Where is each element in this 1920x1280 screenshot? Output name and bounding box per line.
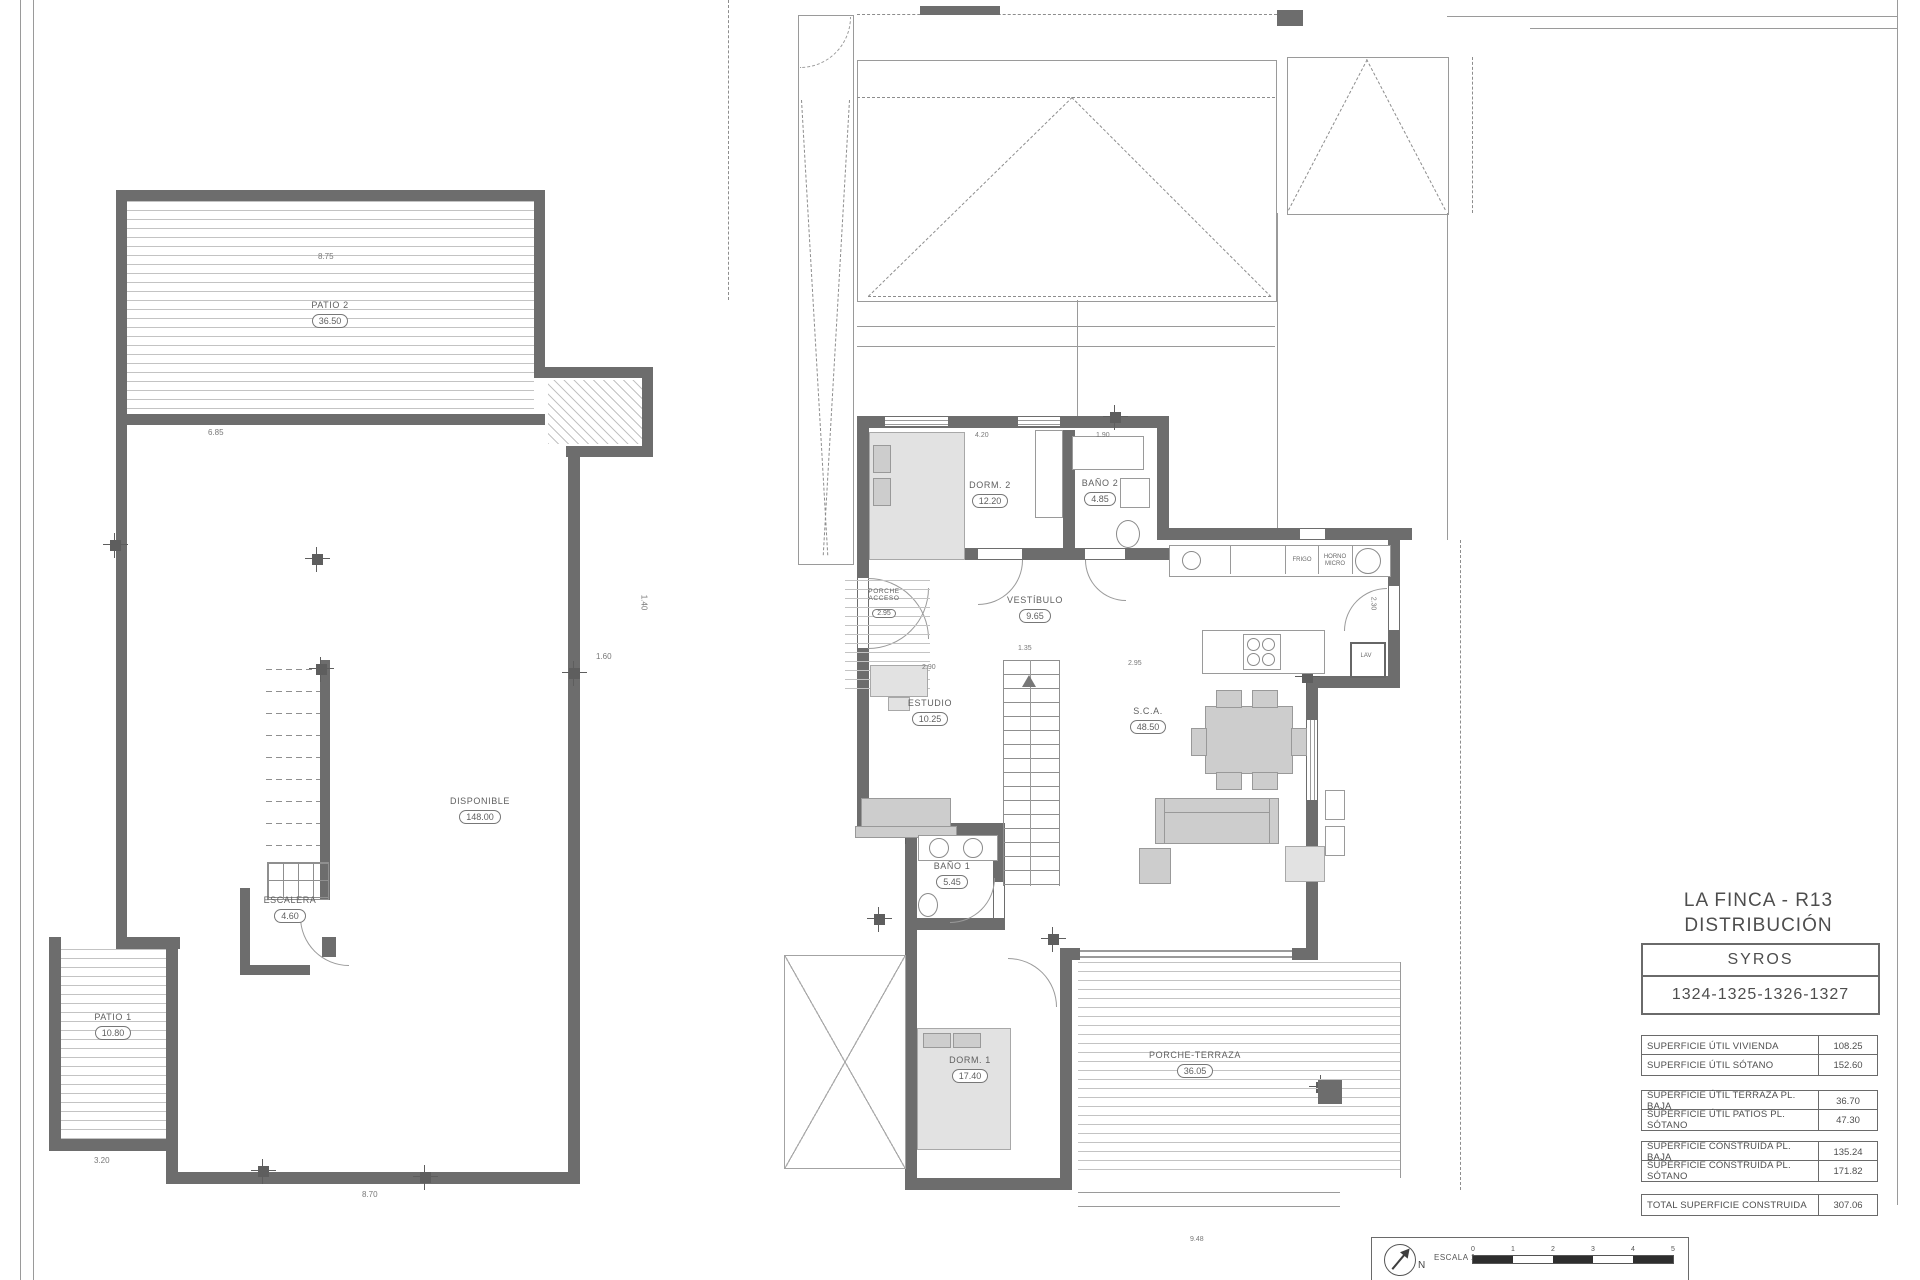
- door-gap: [1389, 586, 1399, 630]
- room-label-terraza: PORCHE-TERRAZA 36.05: [1130, 1050, 1260, 1079]
- dim-label: 4.20: [975, 432, 989, 439]
- room-area: 36.50: [312, 314, 349, 328]
- room-area: 10.80: [95, 1026, 132, 1040]
- horno-label: HORNO MICRO: [1319, 554, 1351, 567]
- total-label: TOTAL SUPERFICIE CONSTRUIDA: [1642, 1200, 1818, 1211]
- door-gap: [1085, 549, 1125, 559]
- area-row-label: SUPERFICIE ÚTIL PATIOS PL. SÓTANO: [1642, 1109, 1818, 1131]
- room-label-patio2: PATIO 2 36.50: [270, 300, 390, 329]
- project-title: LA FINCA - R13: [1641, 890, 1876, 912]
- dim-label: 8.75: [318, 252, 334, 261]
- sink-bano1: [929, 838, 949, 858]
- room-name: DISPONIBLE: [420, 796, 540, 807]
- room-area: 2.95: [872, 609, 896, 618]
- dining-table: [1205, 706, 1293, 774]
- room-name: ACCESO: [848, 595, 920, 602]
- area-row-value: 171.82: [1818, 1161, 1877, 1181]
- sheet-border-right: [1897, 0, 1898, 1205]
- axis-marker: [1048, 934, 1059, 945]
- window-glass: [885, 424, 948, 425]
- room-label-porche-acceso: PORCHE ACCESO 2.95: [848, 588, 920, 620]
- window-glass: [1310, 720, 1311, 800]
- roof-fascia-2: [857, 346, 1275, 347]
- washer-box: [1350, 642, 1386, 678]
- roof-fascia-1: [857, 326, 1275, 327]
- plan-sheet: PATIO 2 36.50 DISPONIBLE 148.00 ESCALERA…: [0, 0, 1920, 1280]
- total-row: TOTAL SUPERFICIE CONSTRUIDA 307.06: [1641, 1194, 1878, 1216]
- terraza-step: [1078, 1192, 1340, 1193]
- room-name: PATIO 2: [270, 300, 390, 311]
- roof-connector: [1077, 300, 1078, 416]
- area-row-value: 152.60: [1818, 1055, 1877, 1075]
- room-label-bano1: BAÑO 1 5.45: [912, 861, 992, 890]
- scale-tick: 2: [1551, 1246, 1555, 1253]
- legend-box: N ESCALA 1: 0 1 2 3 4 5: [1371, 1237, 1689, 1280]
- patio2-wall-right: [534, 190, 545, 378]
- pillow: [923, 1033, 951, 1048]
- room-area: 12.20: [972, 494, 1009, 508]
- pillow: [873, 478, 891, 506]
- patio2-wall-top: [116, 190, 545, 201]
- counter-divider: [1352, 546, 1353, 574]
- pillow: [953, 1033, 981, 1048]
- sofa-estudio: [861, 798, 951, 828]
- basement-wall-bottom: [166, 1172, 580, 1184]
- model-name: SYROS: [1727, 951, 1793, 968]
- scale-tick: 0: [1471, 1246, 1475, 1253]
- scale-tick: 1: [1511, 1246, 1515, 1253]
- north-label: N: [1418, 1260, 1425, 1271]
- room-area: 4.60: [274, 909, 306, 923]
- window-gap: [1307, 720, 1317, 800]
- scale-tick: 4: [1631, 1246, 1635, 1253]
- drawing-title: DISTRIBUCIÓN: [1641, 915, 1876, 937]
- scale-segment: [1553, 1256, 1593, 1263]
- dining-chair: [1291, 728, 1307, 756]
- roof-connector: [1447, 213, 1448, 540]
- sofa-arm: [1269, 798, 1279, 844]
- dim-label: 1.40: [639, 595, 648, 611]
- dim-label: 1.60: [596, 652, 612, 661]
- escalera-wall-bottom: [240, 965, 310, 975]
- dim-label: 2.30: [1369, 597, 1376, 611]
- scale-tick: 3: [1591, 1246, 1595, 1253]
- dim-label: 1.35: [1018, 645, 1032, 652]
- area-row-value: 36.70: [1818, 1091, 1877, 1111]
- terraza-pillar: [1318, 1080, 1342, 1104]
- axis-marker: [569, 668, 580, 679]
- room-area: 4.85: [1084, 492, 1116, 506]
- axis-marker: [1110, 412, 1121, 423]
- room-name: PATIO 1: [63, 1012, 163, 1023]
- kitchen-door-arc: [1344, 588, 1387, 631]
- dim-label: 8.70: [362, 1190, 378, 1199]
- scale-segment: [1473, 1256, 1513, 1263]
- room-name: DORM. 1: [925, 1055, 1015, 1066]
- dim-label: 3.20: [94, 1156, 110, 1165]
- room-area: 5.45: [936, 875, 968, 889]
- slider-stub: [1060, 948, 1080, 960]
- sofa-arm: [1155, 798, 1165, 844]
- escalera-door-post: [322, 937, 336, 957]
- roof-eave-line: [868, 296, 1271, 297]
- lav-label: LAV: [1352, 653, 1380, 660]
- sheet-border-left-outer: [20, 0, 21, 1280]
- frigo-label: FRIGO: [1287, 557, 1317, 564]
- room-label-sca: S.C.A. 48.50: [1098, 706, 1198, 735]
- kitchen-sink: [1182, 551, 1201, 570]
- room-label-dorm1: DORM. 1 17.40: [925, 1055, 1015, 1084]
- bano2-door-arc: [1085, 560, 1126, 601]
- total-value: 307.06: [1818, 1195, 1877, 1215]
- counter-divider: [1285, 546, 1286, 574]
- axis-marker: [316, 664, 327, 675]
- room-name: S.C.A.: [1098, 706, 1198, 717]
- gf-wall-dorm1-bottom: [905, 1178, 1072, 1190]
- patio1-wall-left: [49, 937, 61, 1151]
- area-row: SUPERFICIE ÚTIL PATIOS PL. SÓTANO 47.30: [1641, 1109, 1878, 1131]
- slider-stub: [1292, 948, 1306, 960]
- hob-burner: [1247, 638, 1260, 651]
- top-mark-2: [1277, 10, 1303, 26]
- room-label-patio1: PATIO 1 10.80: [63, 1012, 163, 1041]
- toilet-bano1: [918, 893, 938, 917]
- room-area: 9.65: [1019, 609, 1051, 623]
- boundary-dashed-top: [728, 0, 729, 300]
- roof-connector: [1277, 213, 1278, 528]
- terraza-edge: [1400, 962, 1401, 1178]
- annex-wall-right: [642, 367, 653, 457]
- compass-icon: [1384, 1244, 1416, 1276]
- door-gap: [994, 882, 1004, 922]
- window-glass: [1314, 720, 1315, 800]
- roof-dashed-edge: [1472, 57, 1473, 213]
- room-label-bano2: BAÑO 2 4.85: [1055, 478, 1145, 507]
- dorm1-door-arc: [1008, 958, 1057, 1007]
- window-glass: [1018, 420, 1060, 421]
- axis-marker: [258, 1166, 269, 1177]
- room-label-estudio: ESTUDIO 10.25: [885, 698, 975, 727]
- room-name: ESCALERA: [240, 895, 340, 906]
- area-row-value: 108.25: [1818, 1036, 1877, 1056]
- boundary-dashed-right: [1460, 540, 1461, 1190]
- room-area: 48.50: [1130, 720, 1167, 734]
- dim-label: 9.48: [1190, 1236, 1204, 1243]
- dim-label: 6.85: [208, 428, 224, 437]
- dining-chair: [1216, 690, 1242, 708]
- patio1-wall-bottom: [49, 1139, 173, 1151]
- dim-label: 2.90: [922, 664, 936, 671]
- ac-unit: [1325, 826, 1345, 856]
- annex-hatch: [548, 380, 642, 444]
- room-name: BAÑO 2: [1055, 478, 1145, 489]
- slider-glass: [1080, 956, 1292, 958]
- plots-box: 1324-1325-1326-1327: [1641, 975, 1880, 1015]
- sideboard-estudio: [870, 665, 928, 697]
- stairs-dashed-flight: [266, 648, 322, 862]
- sink-bano1: [963, 838, 983, 858]
- area-row-label: SUPERFICIE CONSTRUIDA PL. SÓTANO: [1642, 1160, 1818, 1182]
- room-name: PORCHE-TERRAZA: [1130, 1050, 1260, 1061]
- scale-segment: [1633, 1256, 1673, 1263]
- plot-numbers: 1324-1325-1326-1327: [1672, 986, 1849, 1003]
- axis-marker: [420, 1172, 431, 1183]
- area-row-label: SUPERFICIE ÚTIL SÓTANO: [1642, 1060, 1818, 1071]
- toilet-bano2: [1116, 520, 1140, 548]
- sheet-border-left-inner: [33, 0, 34, 1280]
- gf-wall-dorm1-right: [1060, 948, 1072, 1190]
- window-glass: [885, 420, 948, 421]
- stairs-ground: [1003, 660, 1060, 886]
- model-box: SYROS: [1641, 943, 1880, 977]
- area-row-value: 135.24: [1818, 1142, 1877, 1162]
- dim-label: 2.95: [1128, 660, 1142, 667]
- window-gap: [1300, 529, 1325, 539]
- dining-chair: [1252, 772, 1278, 790]
- basement-wall-left: [116, 425, 127, 949]
- stairs-rail: [1030, 660, 1031, 886]
- dining-chair: [1216, 772, 1242, 790]
- round-appliance: [1355, 548, 1381, 574]
- room-name: BAÑO 1: [912, 861, 992, 872]
- room-name: ESTUDIO: [885, 698, 975, 709]
- top-line-right-2: [1530, 28, 1897, 29]
- gf-wall-top-b: [1157, 528, 1412, 540]
- top-line-right-1: [1447, 16, 1897, 17]
- basement-wall-right: [568, 446, 580, 1184]
- gf-wall-step: [1157, 416, 1169, 540]
- room-label-escalera: ESCALERA 4.60: [240, 895, 340, 924]
- roof-square-outline: [1287, 57, 1449, 215]
- patio2-wall-bottom: [116, 414, 545, 425]
- room-label-dorm2: DORM. 2 12.20: [940, 480, 1040, 509]
- slider-glass: [1080, 950, 1292, 952]
- armchair: [1139, 848, 1171, 884]
- area-row-label: SUPERFICIE ÚTIL VIVIENDA: [1642, 1041, 1818, 1052]
- hob-burner: [1262, 653, 1275, 666]
- counter-divider: [1230, 546, 1231, 574]
- pillow: [873, 445, 891, 473]
- door-gap: [978, 549, 1022, 559]
- ac-unit: [1325, 790, 1345, 820]
- hob-burner: [1262, 638, 1275, 651]
- room-area: 148.00: [459, 810, 501, 824]
- room-name: DORM. 2: [940, 480, 1040, 491]
- window-glass: [1018, 424, 1060, 425]
- top-mark-1: [920, 6, 1000, 15]
- room-area: 36.05: [1177, 1064, 1214, 1078]
- axis-marker: [874, 914, 885, 925]
- sofa-seat: [1163, 812, 1271, 844]
- room-area: 10.25: [912, 712, 949, 726]
- dining-chair: [1252, 690, 1278, 708]
- compass-needle: [1392, 1250, 1409, 1270]
- room-name: VESTÍBULO: [985, 595, 1085, 606]
- room-label-disponible: DISPONIBLE 148.00: [420, 796, 540, 825]
- area-row-value: 47.30: [1818, 1110, 1877, 1130]
- roof-eave-line: [857, 97, 1275, 98]
- coffee-table: [1285, 846, 1325, 882]
- room-area: 17.40: [952, 1069, 989, 1083]
- patio1-decking: [61, 949, 166, 1139]
- annex-wall-top: [545, 367, 653, 378]
- area-row: SUPERFICIE ÚTIL SÓTANO 152.60: [1641, 1054, 1878, 1076]
- room-name: PORCHE: [848, 588, 920, 595]
- scale-bar: 0 1 2 3 4 5: [1472, 1255, 1674, 1264]
- scale-tick: 5: [1671, 1246, 1675, 1253]
- axis-marker: [110, 540, 121, 551]
- scale-segment: [1513, 1256, 1553, 1263]
- hob-burner: [1247, 653, 1260, 666]
- dim-label: 1.90: [1096, 432, 1110, 439]
- stairs-arrow: [1022, 668, 1036, 687]
- room-label-vestibulo: VESTÍBULO 9.65: [985, 595, 1085, 624]
- scale-segment: [1593, 1256, 1633, 1263]
- axis-marker: [312, 554, 323, 565]
- carport-area: [784, 955, 906, 1169]
- terraza-step: [1078, 1206, 1340, 1207]
- patio2-wall-left: [116, 190, 127, 425]
- area-row: SUPERFICIE CONSTRUIDA PL. SÓTANO 171.82: [1641, 1160, 1878, 1182]
- basement-wall-jog: [116, 937, 180, 949]
- shower-bano2: [1072, 436, 1144, 470]
